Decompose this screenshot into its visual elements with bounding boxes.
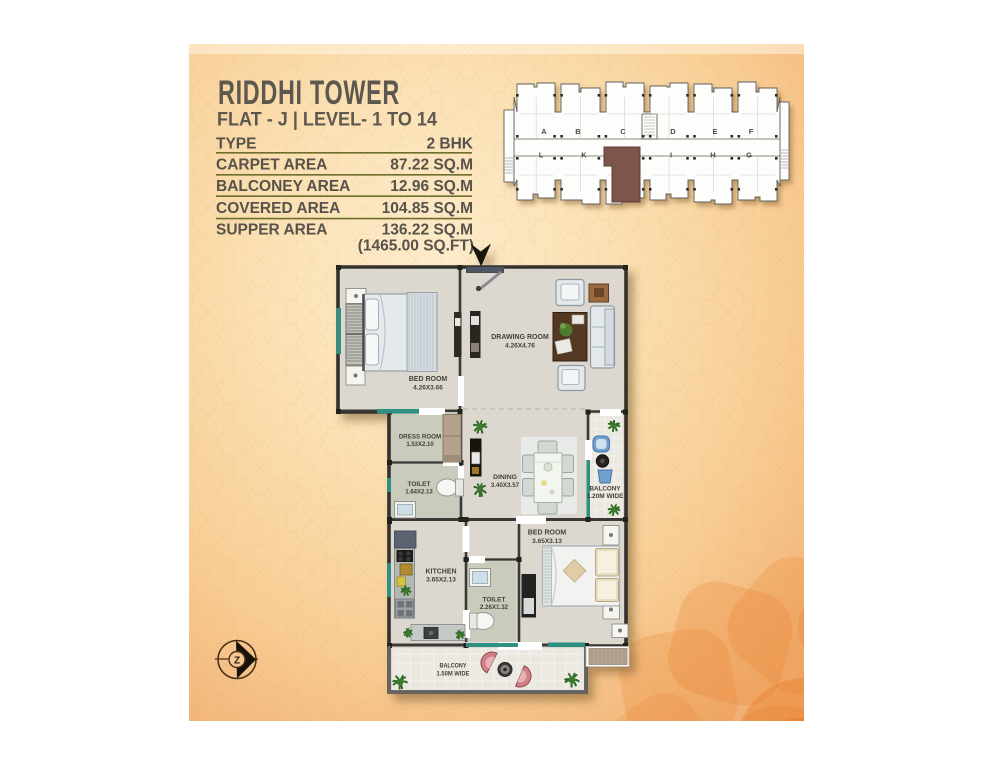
svg-text:G: G bbox=[746, 151, 752, 160]
svg-text:K: K bbox=[581, 151, 587, 160]
svg-text:136.22 SQ.M: 136.22 SQ.M bbox=[382, 222, 473, 239]
svg-text:E: E bbox=[712, 127, 717, 136]
svg-text:BED ROOM: BED ROOM bbox=[528, 530, 567, 537]
svg-text:DINING: DINING bbox=[493, 474, 517, 481]
svg-text:CARPET AREA: CARPET AREA bbox=[216, 157, 327, 174]
svg-text:4.26X4.76: 4.26X4.76 bbox=[505, 343, 535, 350]
svg-text:104.85 SQ.M: 104.85 SQ.M bbox=[382, 200, 473, 217]
svg-text:Z: Z bbox=[234, 656, 240, 667]
svg-text:SUPPER AREA: SUPPER AREA bbox=[216, 222, 327, 239]
svg-text:3.65X3.13: 3.65X3.13 bbox=[532, 538, 562, 545]
svg-text:H: H bbox=[710, 151, 715, 160]
svg-text:A: A bbox=[541, 127, 547, 136]
svg-text:BALCONEY AREA: BALCONEY AREA bbox=[216, 178, 350, 195]
svg-text:1.53X2.10: 1.53X2.10 bbox=[406, 442, 434, 448]
svg-text:1.64X2.13: 1.64X2.13 bbox=[405, 490, 433, 496]
svg-text:RIDDHI TOWER: RIDDHI TOWER bbox=[218, 74, 400, 112]
svg-text:DRESS ROOM: DRESS ROOM bbox=[399, 434, 441, 441]
svg-text:KITCHEN: KITCHEN bbox=[425, 569, 456, 576]
svg-text:B: B bbox=[575, 127, 581, 136]
svg-text:3.65X2.13: 3.65X2.13 bbox=[426, 577, 456, 584]
svg-text:TYPE: TYPE bbox=[216, 136, 256, 153]
svg-text:COVERED AREA: COVERED AREA bbox=[216, 200, 340, 217]
svg-text:4.26X3.66: 4.26X3.66 bbox=[413, 385, 443, 392]
svg-text:1.20M WIDE: 1.20M WIDE bbox=[587, 493, 624, 500]
svg-text:3.40X3.57: 3.40X3.57 bbox=[491, 482, 520, 489]
svg-text:2 BHK: 2 BHK bbox=[426, 136, 473, 153]
svg-text:(1465.00 SQ.FT): (1465.00 SQ.FT) bbox=[358, 238, 474, 255]
svg-text:BED ROOM: BED ROOM bbox=[409, 376, 448, 383]
svg-text:TOILET: TOILET bbox=[483, 597, 506, 604]
svg-text:87.22 SQ.M: 87.22 SQ.M bbox=[390, 157, 473, 174]
svg-text:D: D bbox=[670, 127, 676, 136]
svg-text:DRAWING ROOM: DRAWING ROOM bbox=[491, 334, 549, 341]
svg-text:L: L bbox=[539, 151, 544, 160]
svg-text:1.50M WIDE: 1.50M WIDE bbox=[437, 671, 471, 678]
svg-text:TOILET: TOILET bbox=[408, 481, 431, 488]
svg-text:F: F bbox=[749, 127, 754, 136]
svg-text:I: I bbox=[670, 151, 672, 160]
svg-text:FLAT - J | LEVEL- 1 TO 14: FLAT - J | LEVEL- 1 TO 14 bbox=[217, 110, 437, 131]
svg-text:BALCONY: BALCONY bbox=[440, 663, 467, 670]
svg-text:2.26X1.32: 2.26X1.32 bbox=[480, 604, 509, 611]
svg-text:C: C bbox=[620, 127, 626, 136]
svg-text:12.96 SQ.M: 12.96 SQ.M bbox=[390, 178, 473, 195]
svg-text:BALCONY: BALCONY bbox=[590, 486, 622, 493]
